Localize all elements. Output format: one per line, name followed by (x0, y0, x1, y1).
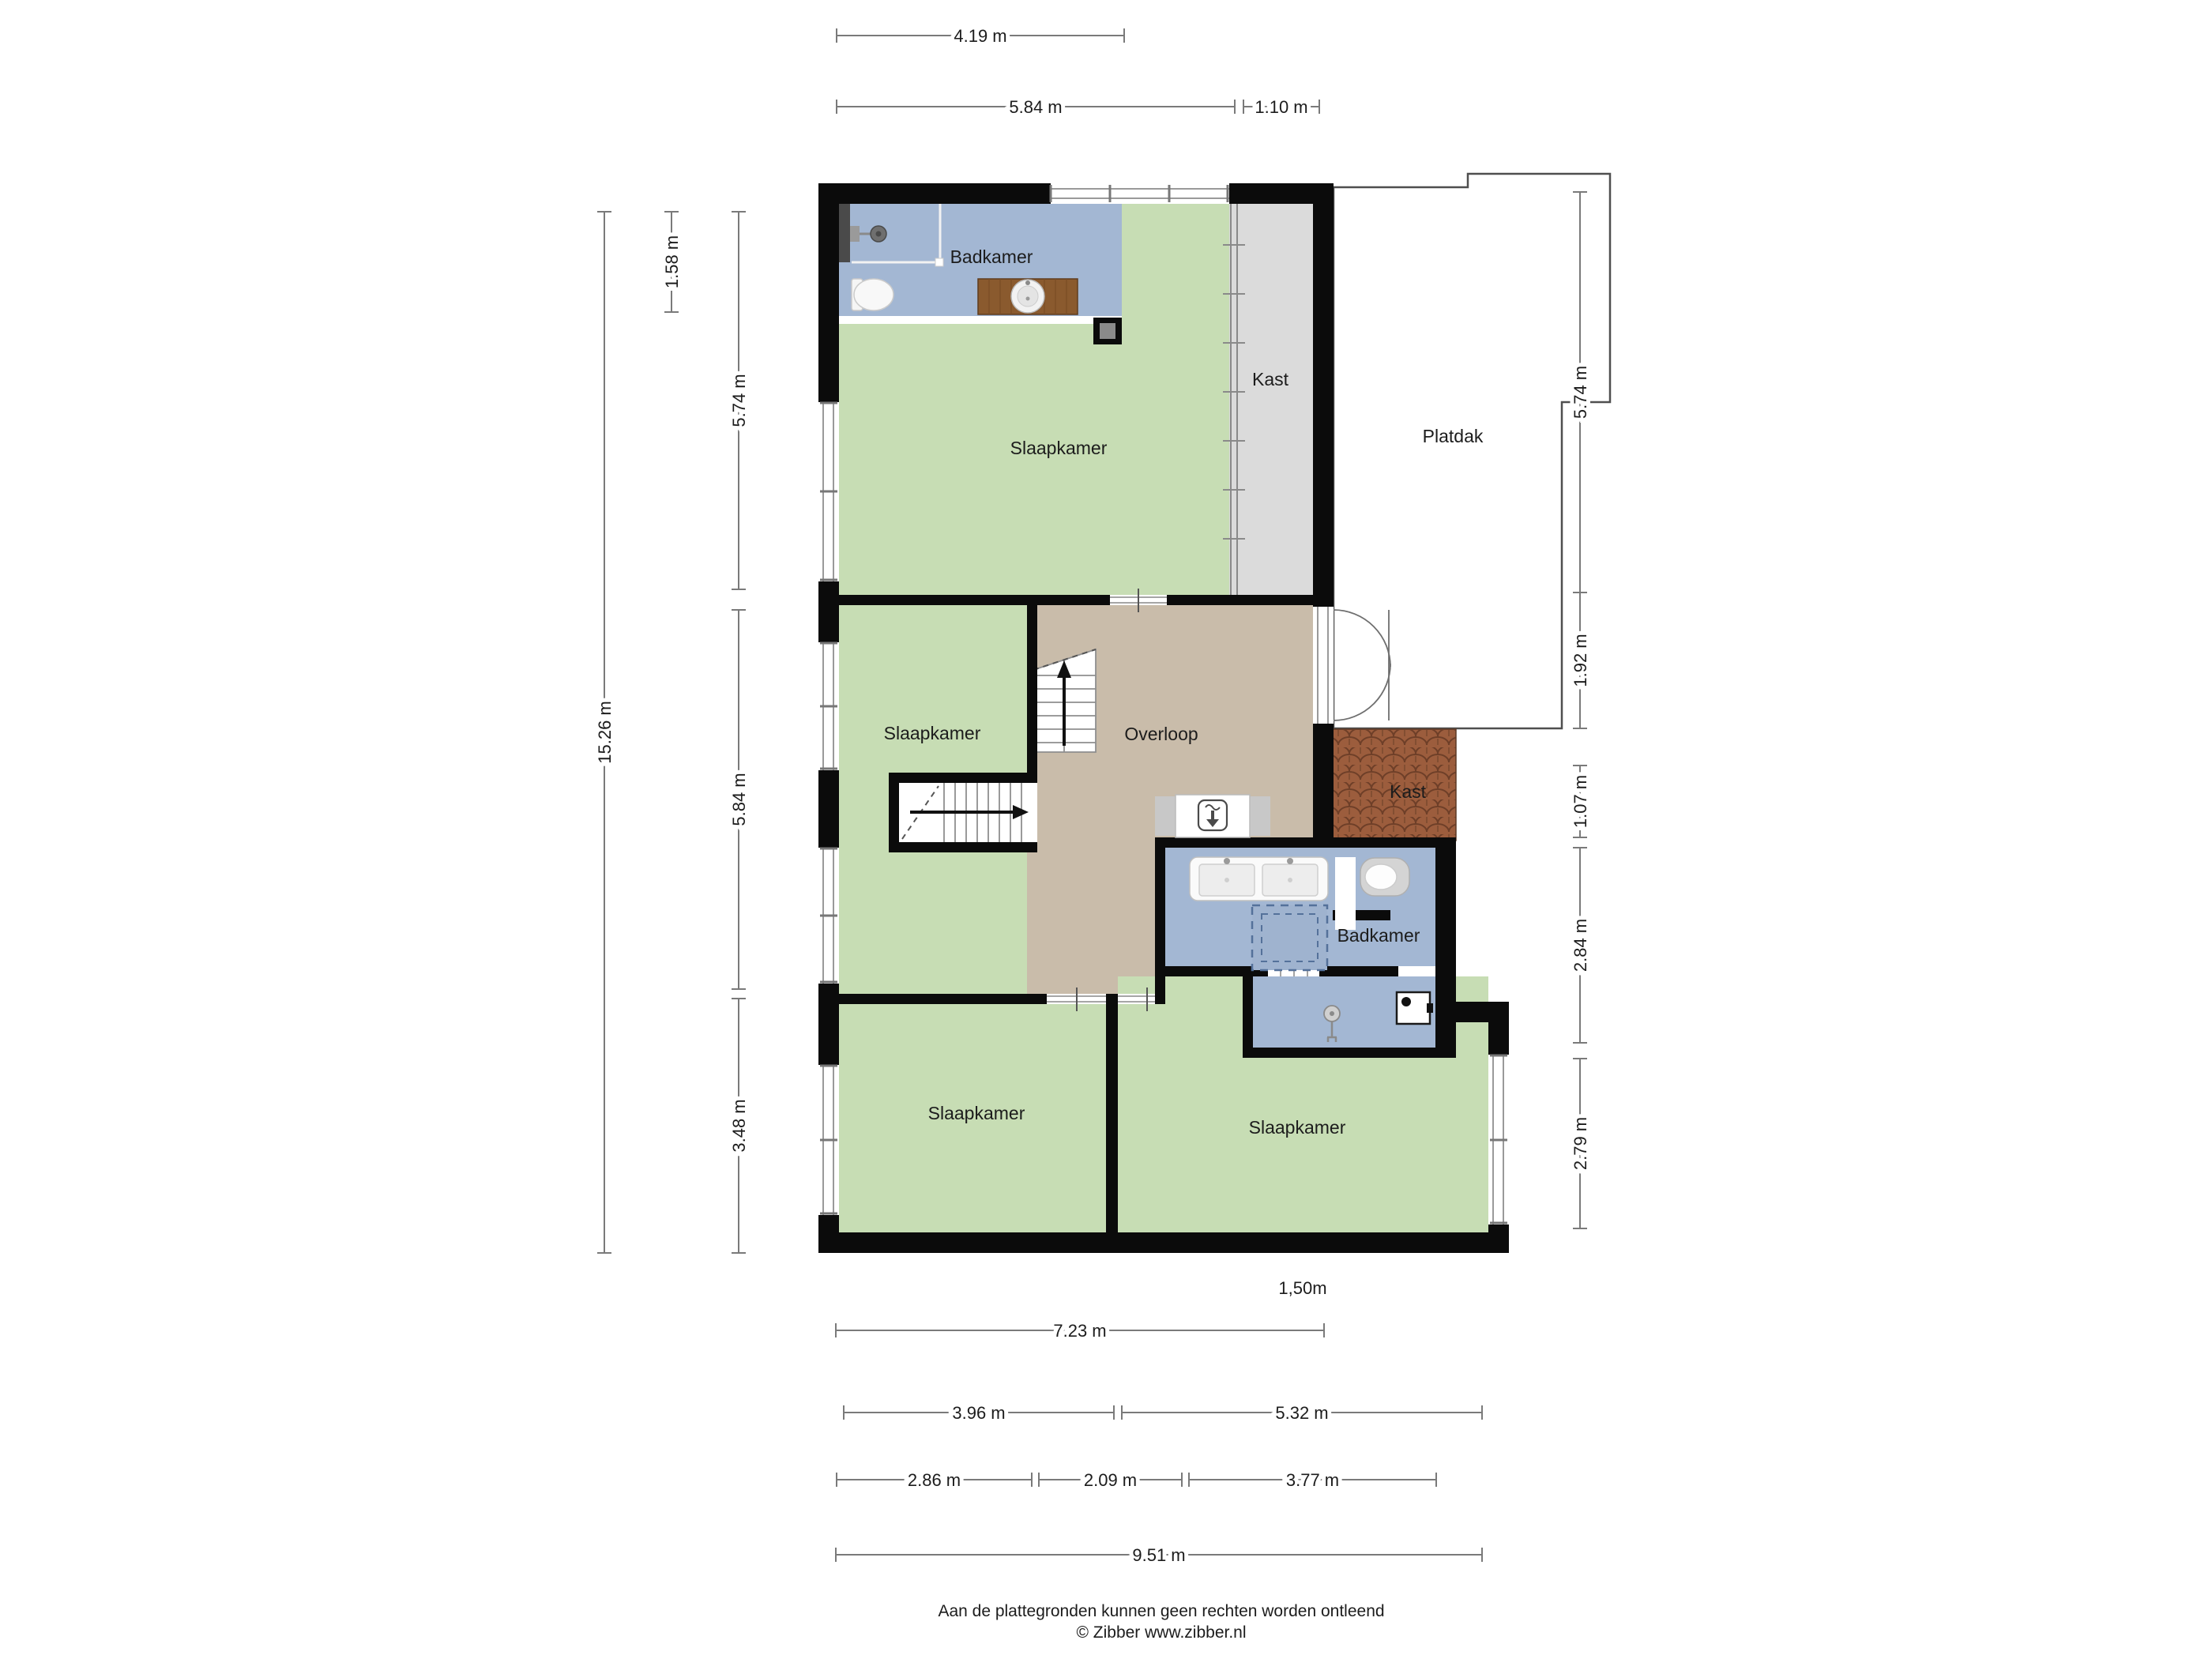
wall-mid-room-right (1027, 605, 1037, 773)
wall-badkamer-top (1155, 837, 1456, 848)
wall-right-mid (1313, 724, 1334, 841)
dim-5-84t: 5.84 m (837, 97, 1235, 117)
dim-9-51-label: 9.51 m (1132, 1545, 1185, 1565)
dim-15-26: 15.26 m (595, 212, 615, 1253)
dim-3-96-label: 3.96 m (952, 1403, 1005, 1423)
stairs-down (889, 773, 1037, 852)
dim-7-23-label: 7.23 m (1053, 1321, 1106, 1341)
wall-a-right (1167, 595, 1313, 605)
room-label-slaapkamer-bottom-right: Slaapkamer (1249, 1117, 1346, 1138)
shower-glass-corner (935, 258, 943, 266)
room-label-kast-mid: Kast (1390, 781, 1427, 802)
wall-badkamer-left-lower (1243, 976, 1253, 1058)
dim-7-23: 7.23 m (836, 1321, 1324, 1341)
wall-badkamer-right (1435, 837, 1456, 1058)
floorplan-drawing: 4.19 m5.84 m1.10 m15.26 m1.58 m5.74 m5.8… (0, 0, 2212, 1659)
room-label-kast-top: Kast (1252, 369, 1289, 389)
washing-machine-icon (1397, 992, 1433, 1024)
double-sink-vanity-icon (1190, 857, 1328, 901)
toilet-icon-mid (1360, 858, 1409, 896)
flat-roof (1334, 174, 1610, 728)
kast-top-floor (1229, 204, 1313, 595)
window-left-4 (818, 1065, 839, 1215)
dim-5-74r-label: 5.74 m (1571, 366, 1590, 419)
dim-4-19: 4.19 m (837, 26, 1124, 46)
dim-2-79: 2.79 m (1571, 1059, 1590, 1228)
room-label-badkamer-mid: Badkamer (1337, 925, 1420, 946)
dim-3-77: 3.77 m (1189, 1470, 1436, 1490)
dim-1-92: 1.92 m (1571, 592, 1590, 728)
dim-9-51: 9.51 m (836, 1545, 1482, 1565)
dim-5-84t-label: 5.84 m (1009, 97, 1062, 117)
dim-2-09-label: 2.09 m (1084, 1470, 1137, 1490)
dim-1-07-label: 1.07 m (1571, 775, 1590, 828)
wall-divider-head (1106, 994, 1118, 1004)
dim-2-84: 2.84 m (1571, 848, 1590, 1043)
dim-1-58: 1.58 m (662, 212, 682, 312)
footer: Aan de plattegronden kunnen geen rechten… (55, 1601, 2212, 1643)
dim-1-50: 1,50m (1278, 1278, 1326, 1298)
toilet-icon (852, 279, 893, 310)
dim-3-48-label: 3.48 m (729, 1099, 749, 1152)
room-label-platdak: Platdak (1423, 426, 1484, 446)
shower-area-dashed-icon (1252, 905, 1327, 970)
window-top-wall (1051, 183, 1229, 204)
wall-b (818, 994, 1047, 1004)
wall-a-left (818, 595, 1110, 605)
dim-5-32: 5.32 m (1122, 1403, 1482, 1423)
flat-roof-outline (1334, 174, 1610, 728)
dim-5-84l-label: 5.84 m (729, 773, 749, 826)
dim-1-50-label: 1,50m (1278, 1278, 1326, 1298)
dim-5-74l-label: 5.74 m (729, 374, 749, 427)
room-label-overloop: Overloop (1124, 724, 1198, 744)
round-sink-vanity-icon (978, 279, 1078, 314)
mechanical-ventilation-icon (1198, 800, 1227, 830)
wall-right-upper (1313, 183, 1334, 607)
dim-5-74l: 5.74 m (729, 212, 749, 589)
dim-3-77-label: 3.77 m (1286, 1470, 1339, 1490)
window-left-3 (818, 848, 839, 984)
room-label-slaapkamer-bottom-left: Slaapkamer (928, 1103, 1025, 1123)
wall-bottom (818, 1232, 1509, 1253)
shower-wall-panel (839, 204, 850, 262)
ventilation-niche (1155, 795, 1270, 837)
dim-2-09: 2.09 m (1039, 1470, 1182, 1490)
dim-2-84-label: 2.84 m (1571, 919, 1590, 972)
wall-badkamer-left (1155, 837, 1165, 1004)
footer-copyright: © Zibber www.zibber.nl (55, 1622, 2212, 1643)
dim-4-19-label: 4.19 m (954, 26, 1006, 46)
dim-2-79-label: 2.79 m (1571, 1117, 1590, 1170)
door-post-inset (1100, 323, 1115, 339)
floorplan-page: { "document": { "type": "floorplan", "la… (0, 0, 2212, 1659)
footer-disclaimer: Aan de plattegronden kunnen geen rechten… (55, 1601, 2212, 1622)
toilet-partition (1335, 857, 1356, 930)
dim-1-58-label: 1.58 m (662, 235, 682, 288)
window-left-2 (818, 642, 839, 770)
dim-2-86: 2.86 m (837, 1470, 1032, 1490)
wall-bedroom-divider (1106, 1004, 1118, 1232)
bathroom-door-track (852, 316, 1093, 324)
window-right-wall (1488, 1055, 1509, 1224)
dim-1-92-label: 1.92 m (1571, 634, 1590, 687)
dim-5-32-label: 5.32 m (1275, 1403, 1328, 1423)
dim-1-07: 1.07 m (1571, 766, 1590, 837)
wall-badkamer-bottom (1243, 1048, 1456, 1058)
dim-1-10-label: 1.10 m (1255, 97, 1307, 117)
dim-2-86-label: 2.86 m (908, 1470, 961, 1490)
dim-5-84l: 5.84 m (729, 610, 749, 989)
room-label-badkamer-top: Badkamer (950, 246, 1033, 267)
dim-3-48: 3.48 m (729, 999, 749, 1253)
room-label-slaapkamer-top: Slaapkamer (1010, 438, 1108, 458)
dim-1-10: 1.10 m (1243, 97, 1319, 117)
dim-15-26-label: 15.26 m (595, 701, 615, 764)
room-label-slaapkamer-mid: Slaapkamer (884, 723, 981, 743)
dim-3-96: 3.96 m (844, 1403, 1114, 1423)
window-left-1 (818, 402, 839, 581)
